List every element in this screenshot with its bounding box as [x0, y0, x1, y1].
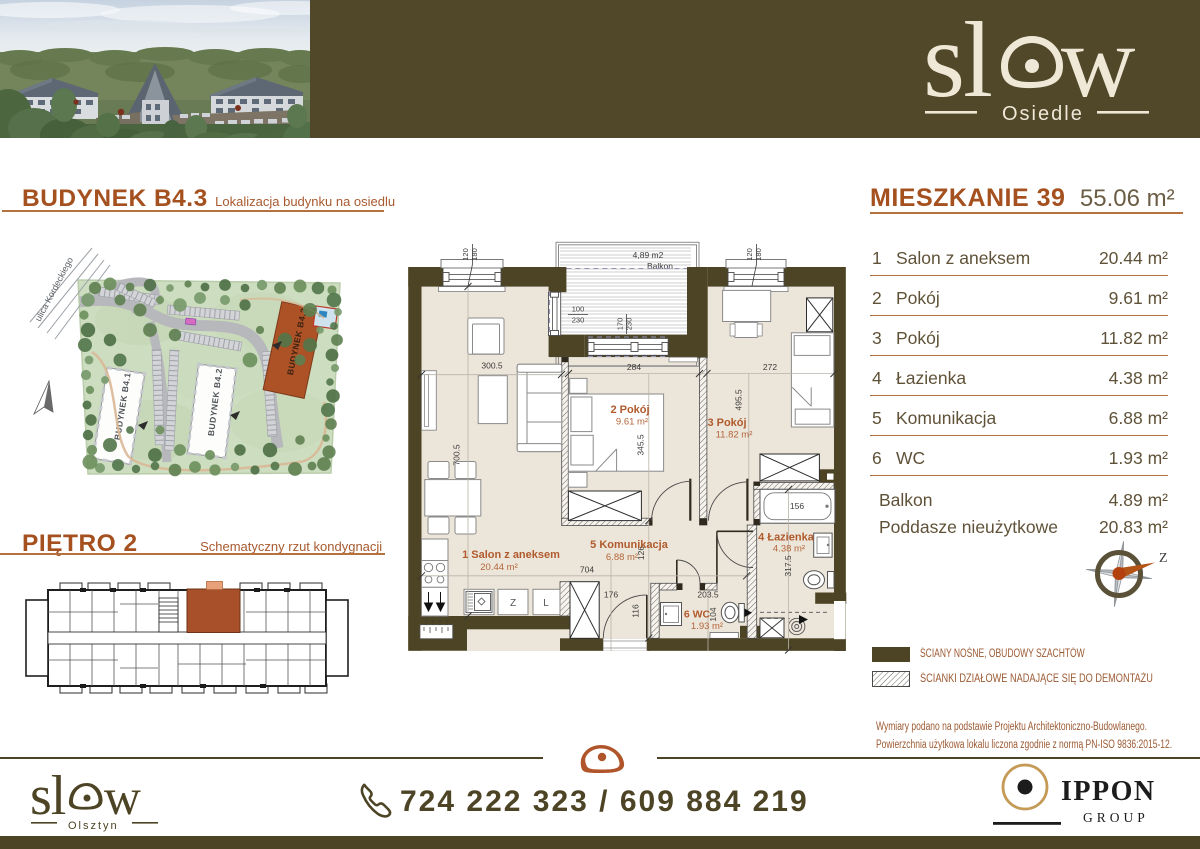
- svg-text:6 WC: 6 WC: [684, 609, 711, 621]
- svg-text:300.5: 300.5: [481, 361, 503, 371]
- svg-text:1 Salon z aneksem: 1 Salon z aneksem: [462, 549, 560, 561]
- svg-text:IPPON: IPPON: [1061, 776, 1156, 807]
- svg-text:sl: sl: [923, 8, 991, 120]
- svg-text:9.61 m²: 9.61 m²: [616, 417, 648, 428]
- svg-text:Z: Z: [510, 598, 516, 609]
- svg-text:700.5: 700.5: [452, 444, 462, 466]
- svg-text:495.5: 495.5: [734, 389, 744, 411]
- svg-text:Osiedle: Osiedle: [1002, 103, 1084, 125]
- svg-text:230: 230: [625, 318, 634, 331]
- svg-text:120: 120: [745, 248, 754, 261]
- svg-text:5 Komunikacja: 5 Komunikacja: [590, 539, 669, 551]
- svg-text:GROUP: GROUP: [1083, 810, 1149, 825]
- svg-text:4 Łazienka: 4 Łazienka: [758, 532, 815, 544]
- svg-text:203.5: 203.5: [697, 590, 719, 600]
- svg-text:Z: Z: [1159, 551, 1168, 566]
- svg-text:116: 116: [631, 604, 641, 618]
- svg-text:6.88 m²: 6.88 m²: [606, 552, 638, 563]
- svg-text:272: 272: [763, 362, 777, 372]
- svg-text:4.38 m²: 4.38 m²: [773, 544, 805, 555]
- svg-text:3 Pokój: 3 Pokój: [707, 417, 746, 429]
- svg-text:ulica Kordeckiego: ulica Kordeckiego: [33, 256, 75, 323]
- svg-text:176: 176: [604, 590, 618, 600]
- svg-text:sl: sl: [30, 770, 66, 827]
- svg-text:11.82 m²: 11.82 m²: [716, 430, 753, 441]
- svg-text:284: 284: [627, 362, 641, 372]
- svg-text:180: 180: [470, 248, 479, 261]
- svg-text:w: w: [104, 770, 141, 826]
- svg-text:230: 230: [572, 316, 585, 325]
- svg-text:Olsztyn: Olsztyn: [68, 820, 119, 832]
- svg-text:317.5: 317.5: [783, 555, 793, 577]
- svg-text:2 Pokój: 2 Pokój: [610, 404, 649, 416]
- svg-text:704: 704: [580, 565, 594, 575]
- svg-text:1.93 m²: 1.93 m²: [691, 621, 723, 632]
- svg-text:120: 120: [461, 248, 470, 261]
- svg-text:170: 170: [616, 318, 625, 331]
- svg-text:L: L: [543, 598, 549, 609]
- svg-text:100: 100: [572, 305, 585, 314]
- svg-text:345.5: 345.5: [636, 434, 646, 456]
- svg-text:Balkon: Balkon: [647, 261, 673, 271]
- svg-text:20.44 m²: 20.44 m²: [480, 562, 518, 573]
- svg-text:156: 156: [790, 501, 804, 511]
- svg-text:4,89 m2: 4,89 m2: [633, 250, 664, 260]
- svg-text:180: 180: [754, 248, 763, 261]
